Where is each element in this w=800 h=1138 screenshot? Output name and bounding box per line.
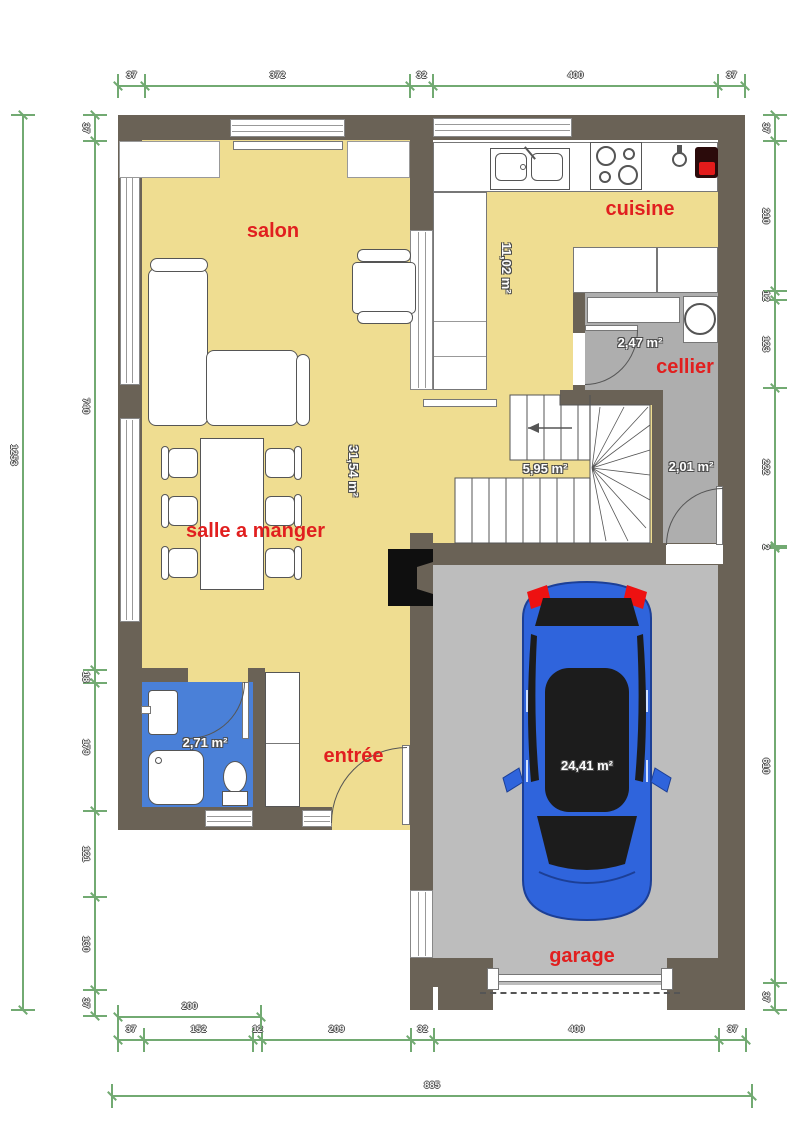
bath-faucet-icon — [141, 706, 151, 714]
wall-stairs-hall — [652, 405, 663, 545]
burner-icon — [623, 148, 635, 160]
garage-door-dashed-line — [480, 992, 680, 994]
kitchen-cabinet-a — [573, 247, 657, 293]
dim-label: 200 — [170, 1001, 210, 1013]
room-label-salon: salon — [228, 220, 318, 242]
dim-label: 12 — [238, 1024, 278, 1036]
dim-label: 18 — [79, 657, 91, 697]
room-label-cuisine: cuisine — [595, 198, 685, 220]
wall-salon-kitchen — [410, 140, 433, 232]
wall-garage-west — [410, 533, 433, 890]
cellier-door-opening — [573, 333, 585, 385]
dim-label: 130 — [79, 924, 91, 964]
area-label-garage: 24,41 m² — [545, 759, 629, 775]
dim-mark — [774, 115, 776, 1010]
chair-back — [294, 446, 302, 480]
dim-mark — [112, 1095, 752, 1097]
window-left-dining — [120, 418, 140, 622]
armchair-seat — [352, 262, 416, 314]
chair — [168, 448, 198, 478]
gas-point-stem — [677, 145, 682, 153]
cellier-shelf — [587, 297, 680, 323]
dim-mark — [118, 1016, 261, 1018]
dim-label: 740 — [79, 386, 91, 426]
dim-label: 152 — [179, 1024, 219, 1036]
area-label-cellier: 2,47 m² — [608, 336, 672, 350]
hall-door-opening — [666, 544, 723, 564]
dim-label: 32 — [403, 1024, 443, 1036]
room-label-salle-a-manger: salle a manger — [178, 520, 333, 542]
room-label-entree: entrée — [306, 745, 401, 767]
bath-sink — [148, 690, 178, 735]
window-bottom-a — [205, 810, 253, 827]
dim-label: 610 — [759, 746, 771, 786]
floor-plan: salon cuisine cellier salle a manger ent… — [0, 0, 800, 1138]
wall-right — [718, 140, 745, 1010]
entry-closet — [265, 672, 300, 807]
dim-label: 37 — [112, 70, 152, 82]
dim-label: 210 — [759, 196, 771, 236]
garage-door-post-left — [487, 968, 499, 990]
burner-icon — [599, 171, 611, 183]
dim-label: 37 — [79, 108, 91, 148]
burner-icon — [596, 146, 616, 166]
chair — [265, 548, 295, 578]
dim-label: 37 — [713, 1024, 753, 1036]
boiler-front — [699, 162, 715, 175]
toilet-bowl — [223, 761, 247, 793]
wall-bath-right — [253, 682, 265, 807]
area-label-cuisine: 11,02 m² — [499, 238, 513, 298]
dim-label: 121 — [79, 834, 91, 874]
kitchen-counter-top — [433, 142, 718, 192]
chair-back — [294, 546, 302, 580]
area-label-bathroom: 2,71 m² — [173, 736, 237, 750]
garage-floor — [433, 565, 718, 985]
wall-bath-top-b — [248, 668, 265, 682]
dim-label: 2 — [759, 527, 771, 567]
dim-label: 209 — [317, 1024, 357, 1036]
sofa-seat — [206, 350, 298, 426]
dining-table — [200, 438, 264, 590]
salon-alcove-left — [119, 141, 220, 178]
dim-label: 1253 — [7, 435, 19, 475]
dim-label: 12 — [759, 276, 771, 316]
tv-sideboard — [233, 141, 343, 150]
room-label-cellier: cellier — [640, 356, 730, 378]
room-label-garage: garage — [537, 945, 627, 967]
kitchen-counter-left — [433, 192, 487, 390]
sink-basin-right — [531, 153, 563, 181]
wall-cellier-left-stub — [573, 385, 585, 395]
burner-icon — [618, 165, 638, 185]
garage-door-pier-right-b — [667, 985, 745, 1010]
dim-mark — [94, 115, 96, 1016]
shower-drain — [155, 757, 162, 764]
salon-alcove-right — [347, 141, 410, 178]
armchair-front — [357, 311, 413, 324]
wall-top — [118, 115, 745, 140]
window-kitchen — [433, 118, 572, 137]
dim-label: 37 — [712, 70, 752, 82]
garage-door-post-right — [661, 968, 673, 990]
garage-door-rail — [493, 974, 667, 982]
area-label-stairs: 5,95 m² — [513, 462, 577, 476]
dim-label: 37 — [759, 977, 771, 1017]
corridor-floor-west — [410, 390, 433, 533]
window-left-salon — [120, 170, 140, 385]
dim-label: 37 — [759, 108, 771, 148]
window-garage-left — [410, 890, 433, 958]
wall-cellier-left — [573, 293, 585, 333]
area-label-sejour: 31,54 m² — [346, 441, 360, 501]
dim-label: 222 — [759, 447, 771, 487]
chair — [168, 548, 198, 578]
dim-label: 179 — [79, 727, 91, 767]
kitchen-floor-strip — [487, 295, 573, 390]
garage-door-pier-left-a — [410, 958, 493, 987]
chair — [265, 448, 295, 478]
dim-label: 885 — [412, 1080, 452, 1092]
gas-point-icon — [672, 152, 687, 167]
sink-drain — [520, 164, 526, 170]
wall-bath-top-a — [142, 668, 188, 682]
dim-label: 123 — [759, 324, 771, 364]
toilet-tank — [222, 791, 248, 806]
dim-mark — [22, 115, 24, 1010]
sofa-armrest — [296, 354, 310, 426]
dim-label: 37 — [79, 983, 91, 1023]
window-top-salon — [230, 119, 345, 137]
dim-label: 32 — [402, 70, 442, 82]
dim-label: 400 — [557, 1024, 597, 1036]
garage-door-pier-left-b — [438, 985, 493, 1010]
washing-machine-drum — [684, 303, 716, 335]
dim-label: 400 — [556, 70, 596, 82]
sofa-headrest — [150, 258, 208, 272]
garage-door-pier-right-a — [667, 958, 745, 987]
kitchen-cabinet-b — [657, 247, 718, 293]
chair-back — [161, 546, 169, 580]
sofa-back — [148, 268, 208, 426]
stair-railing — [423, 399, 497, 407]
chair-back — [161, 494, 169, 528]
window-bottom-b — [302, 810, 332, 827]
armchair-back — [357, 249, 411, 262]
chair-back — [161, 446, 169, 480]
dim-label: 372 — [258, 70, 298, 82]
area-label-hall: 2,01 m² — [659, 460, 723, 474]
